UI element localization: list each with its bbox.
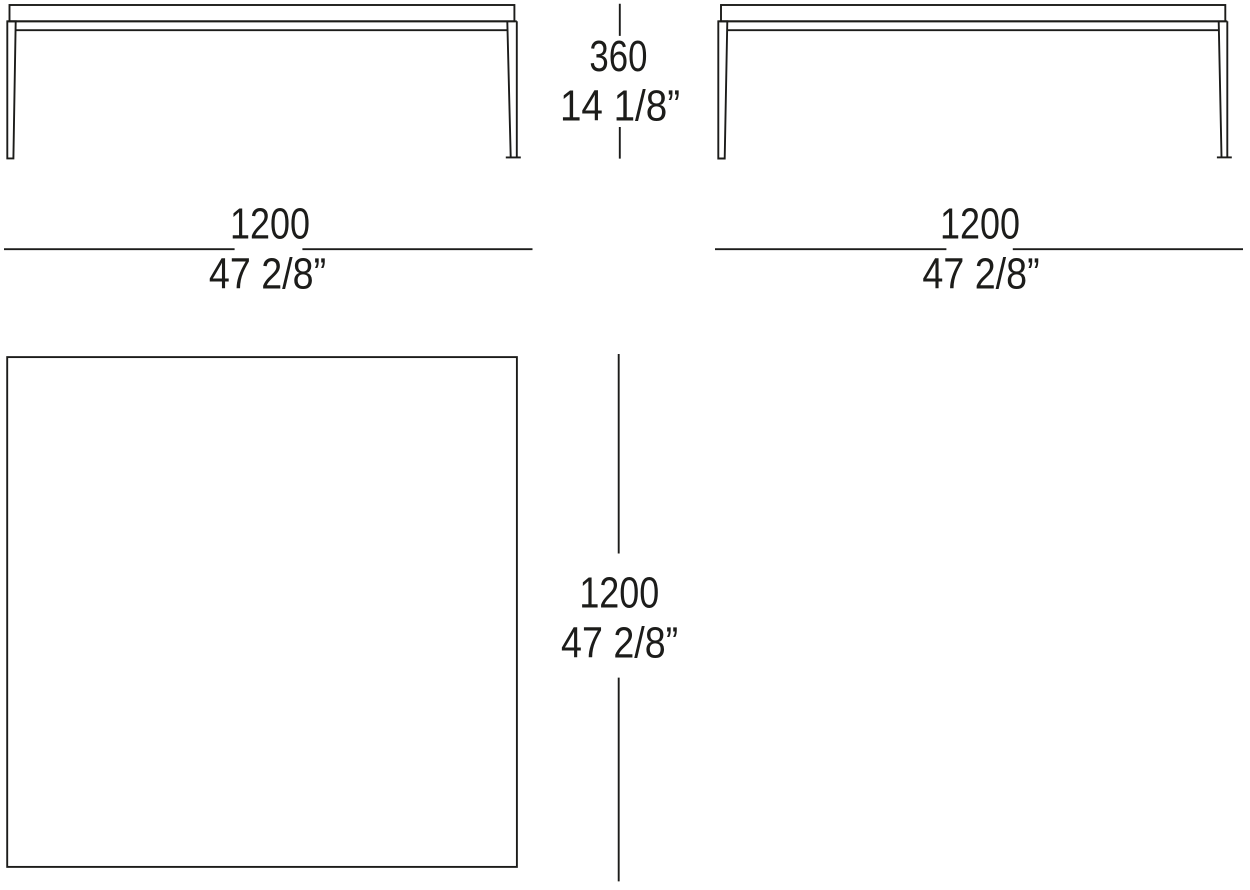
svg-text:1200: 1200 <box>940 199 1020 248</box>
svg-text:47 2/8”: 47 2/8” <box>561 618 678 667</box>
svg-text:14 1/8”: 14 1/8” <box>560 81 680 130</box>
svg-text:47 2/8”: 47 2/8” <box>209 249 326 298</box>
svg-text:1200: 1200 <box>579 568 659 617</box>
svg-text:360: 360 <box>589 32 647 81</box>
svg-text:1200: 1200 <box>230 199 310 248</box>
svg-text:47 2/8”: 47 2/8” <box>922 249 1039 298</box>
